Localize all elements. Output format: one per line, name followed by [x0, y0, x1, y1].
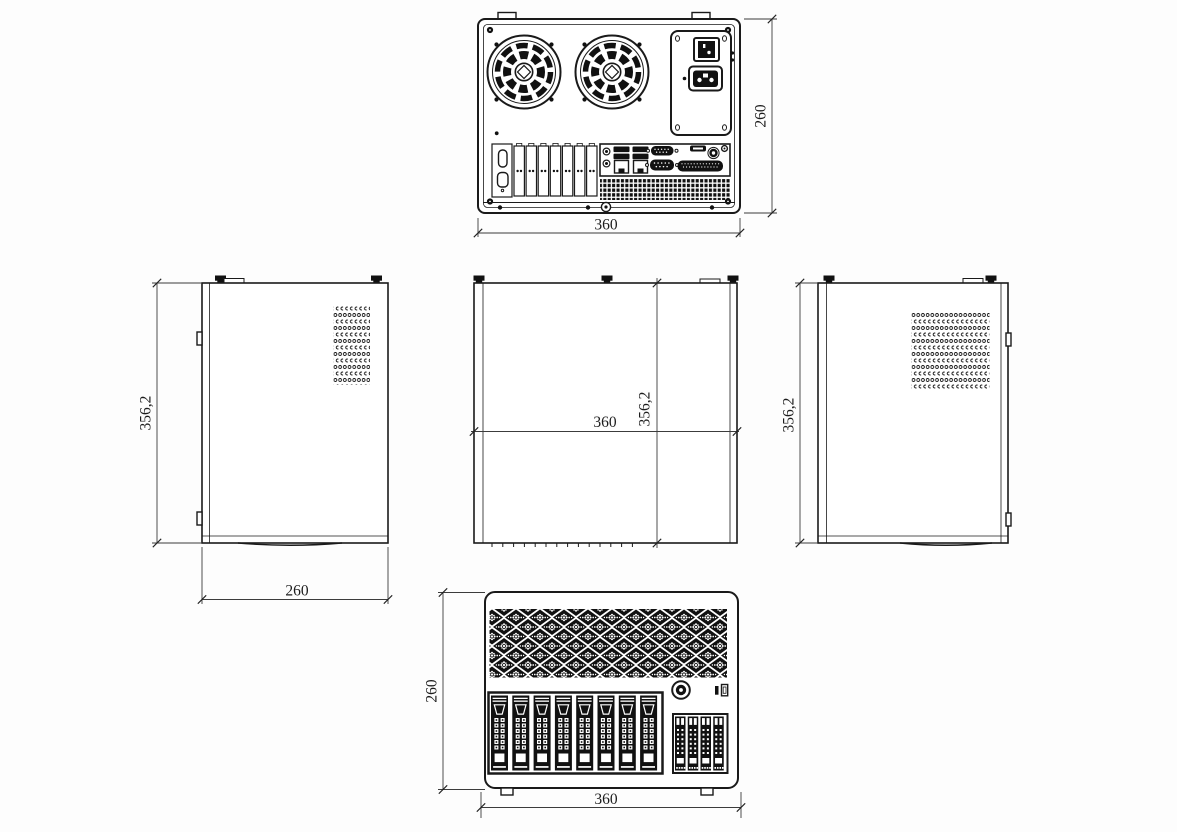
chassis-engineering-drawing: 360 260 356,2 260 360 — [0, 0, 1177, 832]
removable-drive-bays — [673, 714, 728, 773]
vent-grid — [600, 179, 730, 200]
drive-bay — [640, 696, 657, 771]
dim-label-side-height: 356,2 — [138, 396, 155, 431]
power-supply — [671, 31, 734, 135]
drawing-sheet: 360 260 356,2 260 360 — [0, 0, 1177, 832]
dim-side-height: 356,2 — [138, 279, 203, 547]
right-side-view: 356,2 — [781, 276, 1012, 548]
chassis-foot — [501, 788, 513, 795]
dim-label-front-width: 360 — [594, 791, 618, 808]
rear-view: 360 260 — [474, 13, 777, 238]
side-vent-holes — [334, 305, 371, 385]
small-drive-bay — [688, 717, 699, 771]
parallel-port — [678, 161, 724, 172]
small-drive-bay — [675, 717, 686, 771]
dim-side-height: 356,2 — [781, 279, 819, 547]
front-bezel-ticks — [492, 544, 632, 548]
chassis-foot — [701, 788, 713, 795]
side-vent-holes — [912, 311, 990, 389]
top-panel-outline — [474, 283, 737, 543]
expansion-slot-cover — [575, 143, 585, 196]
dim-front-height: 260 — [424, 588, 486, 793]
usb-port — [715, 685, 728, 696]
small-drive-bay — [701, 717, 712, 771]
expansion-slots — [492, 143, 597, 197]
thumbscrew-knob — [602, 276, 613, 284]
thumbscrew-knob — [474, 276, 485, 284]
drive-bay — [491, 696, 508, 771]
power-inlet — [683, 67, 722, 91]
drive-bay — [512, 696, 529, 771]
expansion-slot-cover — [526, 143, 536, 196]
dim-label-top-depth: 356,2 — [637, 392, 654, 427]
dim-label-rear-height: 260 — [753, 104, 770, 128]
dim-side-depth: 260 — [198, 547, 392, 604]
dim-label-top-width: 360 — [593, 414, 617, 431]
thumbscrew-knob — [728, 276, 739, 284]
front-view: 260 360 — [424, 588, 746, 818]
cooling-fan — [576, 36, 649, 109]
drive-bay — [598, 696, 615, 771]
hinge-tab — [197, 332, 202, 345]
dim-label-rear-width: 360 — [594, 217, 618, 234]
hinge-tab — [1006, 513, 1011, 526]
expansion-slot-cover — [514, 143, 524, 196]
rocker-switch — [694, 38, 719, 61]
dim-label-side-depth: 260 — [285, 583, 309, 600]
left-side-view: 356,2 260 — [138, 276, 393, 605]
cooling-fan — [488, 36, 561, 109]
display-port — [690, 146, 706, 152]
drive-bays — [489, 693, 663, 774]
expansion-slot-cover — [587, 143, 597, 196]
top-view: 360 356,2 — [470, 276, 741, 549]
front-vent-grille — [490, 609, 728, 678]
drive-bay — [619, 696, 636, 771]
expansion-slot-cover — [562, 143, 572, 196]
dim-label-side-height: 356,2 — [781, 398, 798, 433]
drive-bay — [576, 696, 593, 771]
small-drive-bay — [713, 717, 724, 771]
drive-bay — [534, 696, 551, 771]
thumbscrew-knob — [824, 276, 835, 284]
io-panel — [600, 144, 730, 176]
drive-bay — [555, 696, 572, 771]
hinge-tab — [197, 512, 202, 525]
expansion-slot-cover — [550, 143, 560, 196]
thumbscrew-knob — [986, 276, 997, 284]
dim-rear-height: 260 — [744, 15, 777, 217]
dim-label-front-height: 260 — [424, 679, 441, 703]
thumbscrew-knob — [371, 276, 382, 284]
expansion-slot-cover — [538, 143, 548, 196]
dim-rear-width: 360 — [474, 217, 744, 238]
hinge-tab — [1006, 333, 1011, 346]
din-connector — [708, 147, 719, 158]
